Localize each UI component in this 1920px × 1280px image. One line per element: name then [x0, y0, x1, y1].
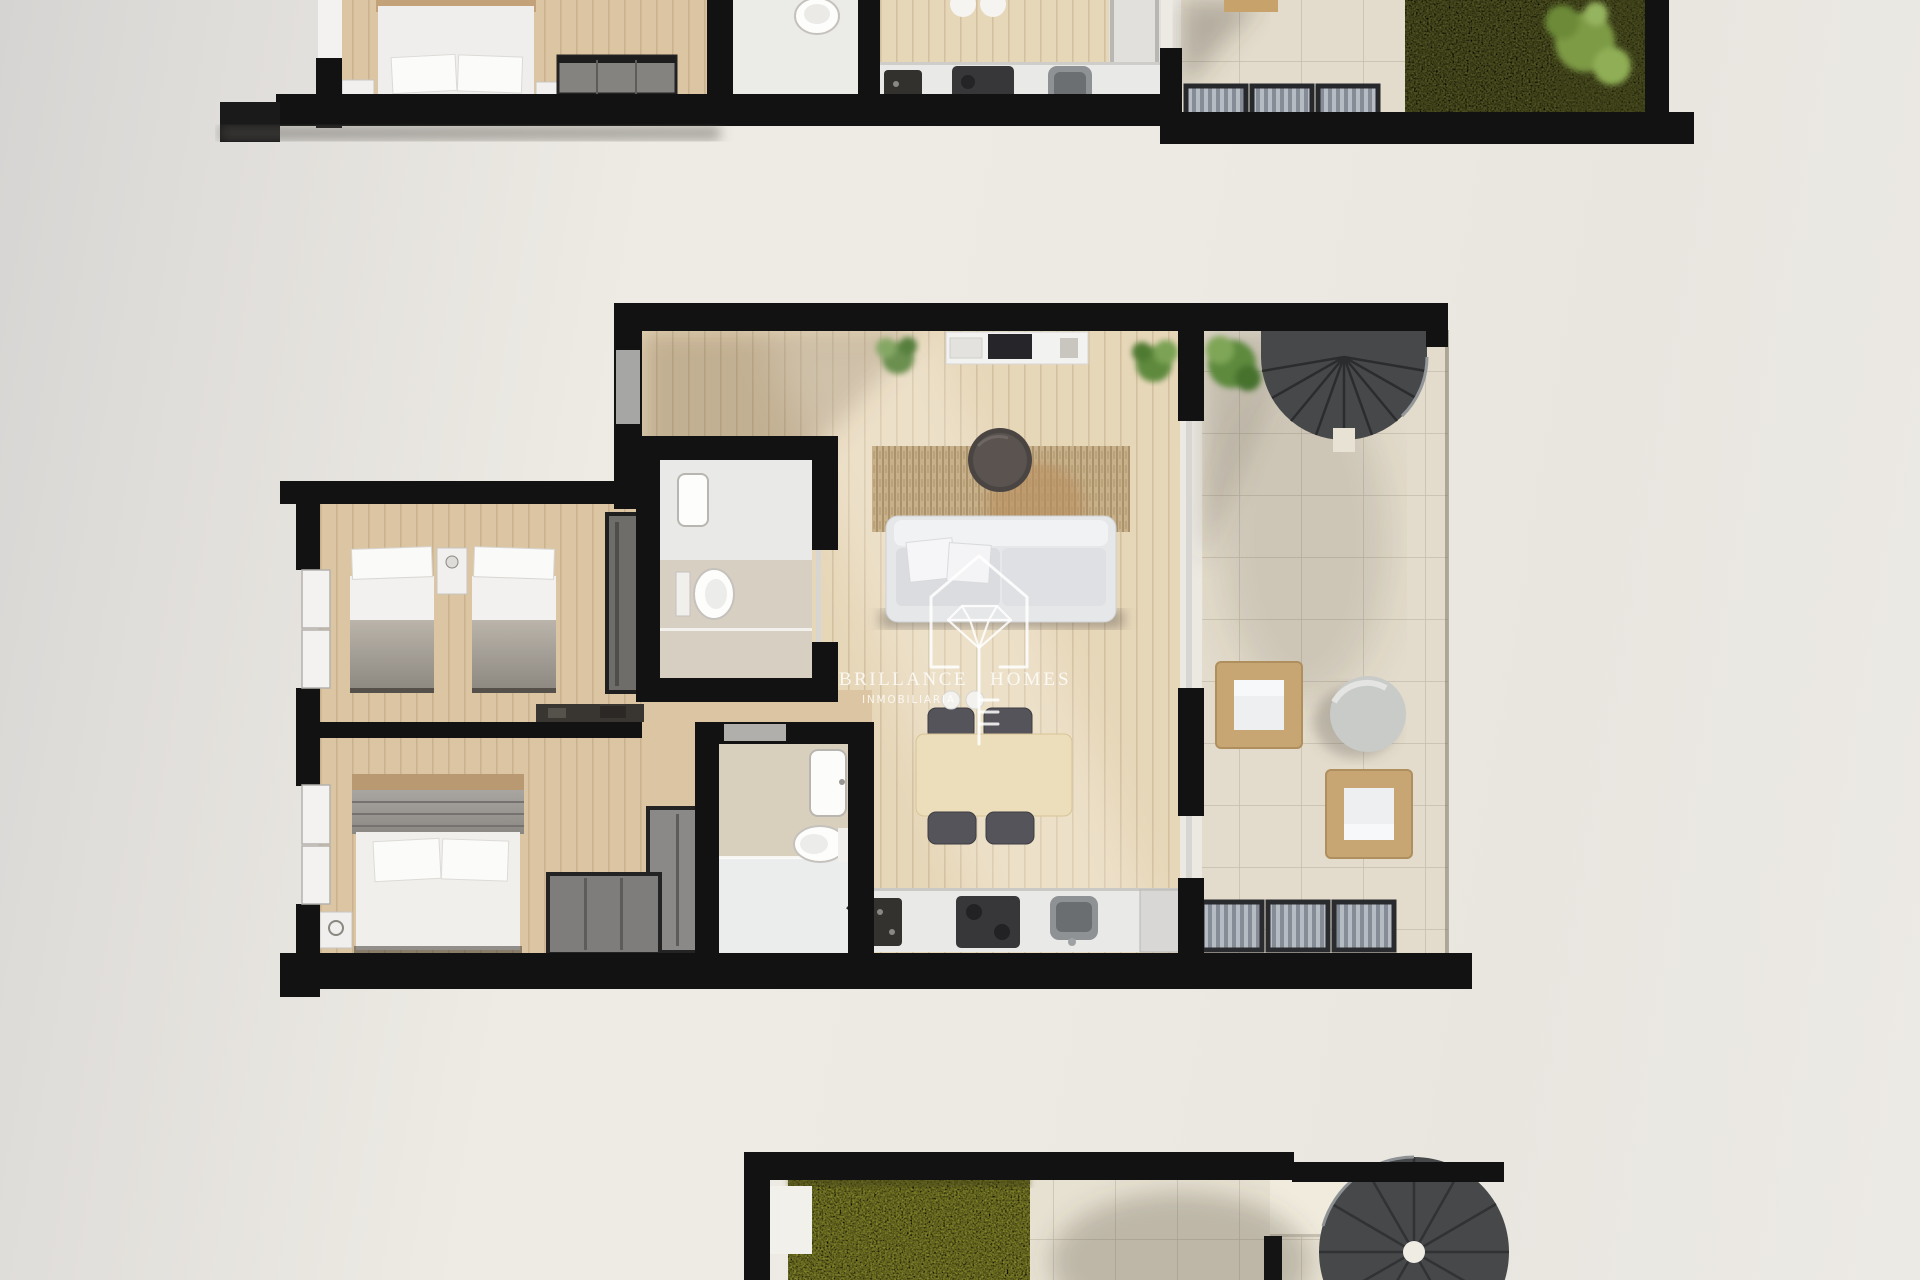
planter-boxes — [1202, 902, 1394, 950]
floor-plan-top — [220, 0, 1694, 144]
cooktop — [956, 896, 1020, 948]
single-bed — [472, 547, 556, 693]
outdoor-table — [1224, 0, 1278, 12]
kitchen-counter — [862, 888, 1180, 952]
nightstand — [437, 548, 467, 594]
wicker-armchair — [1326, 770, 1412, 858]
pendant-lamp — [966, 691, 984, 709]
door-leaf — [724, 724, 786, 741]
glass-door — [816, 550, 821, 642]
planter-boxes — [1186, 86, 1378, 116]
single-bed — [350, 547, 434, 693]
lightwell — [768, 1186, 812, 1254]
floor-plans-graphic — [0, 0, 1920, 1280]
dining-table — [916, 734, 1072, 816]
window — [318, 0, 342, 60]
glass-door — [1186, 816, 1192, 878]
double-bed — [352, 774, 524, 955]
nightstand — [320, 912, 352, 948]
floor-plan-middle — [280, 303, 1472, 997]
wall-shelf — [536, 704, 644, 722]
toilet — [795, 0, 839, 34]
round-side-table — [968, 428, 1032, 492]
tv-console — [946, 332, 1088, 364]
wardrobe — [607, 514, 639, 692]
toilet — [676, 569, 734, 619]
wicker-armchair — [1216, 662, 1302, 748]
throw-pillow — [947, 543, 992, 584]
fridge — [1140, 890, 1180, 952]
floor-plan-bottom — [744, 1152, 1509, 1280]
sink — [1050, 896, 1098, 946]
floor-plan-canvas: BRILLANCE HOMES INMOBILIARIA — [0, 0, 1920, 1280]
garden-lawn — [788, 1178, 1030, 1280]
wardrobe — [558, 56, 676, 94]
dining-chair — [986, 812, 1034, 844]
pendant-lamp — [942, 691, 960, 709]
dining-chair — [928, 812, 976, 844]
washbasin — [678, 474, 708, 526]
toilet — [794, 826, 848, 862]
double-bed — [376, 0, 536, 108]
sofa — [880, 516, 1124, 628]
glass-door — [1186, 421, 1192, 688]
tv — [988, 334, 1032, 359]
window — [616, 350, 640, 424]
